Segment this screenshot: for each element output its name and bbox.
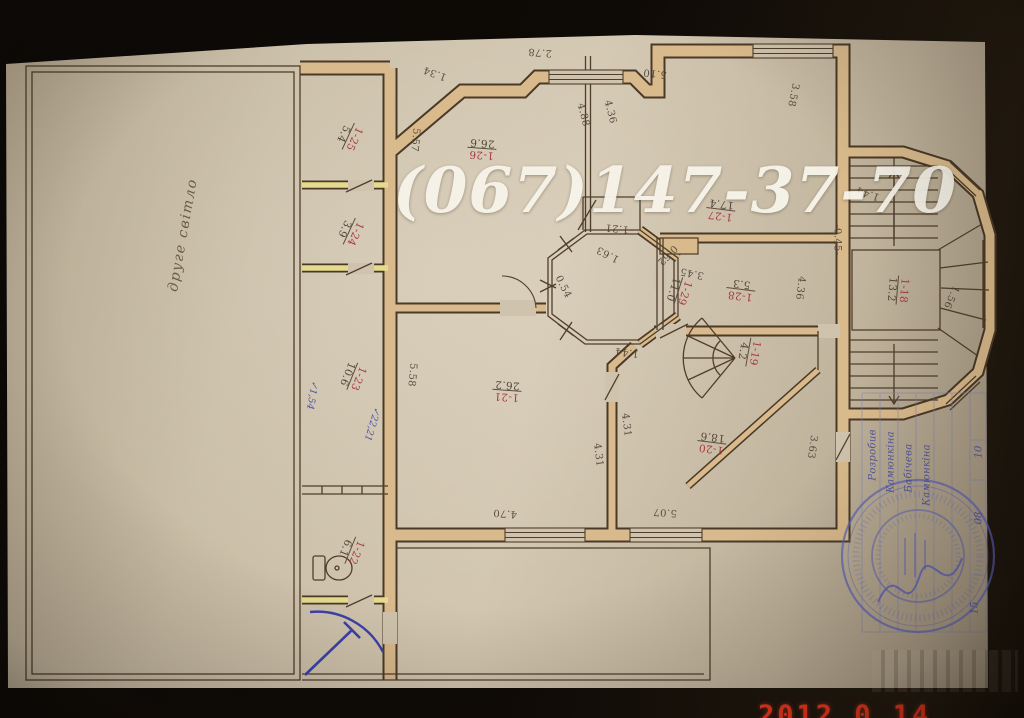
dim-label: 2.78 <box>528 46 553 59</box>
stamp-row-label: Бабічева <box>904 444 915 493</box>
entry-arrow <box>305 622 360 675</box>
stamp-row-label: Розробив <box>868 429 879 480</box>
room-label-1-18: 1-1813.2 <box>884 275 910 306</box>
room-area: 26.6 <box>470 135 495 148</box>
room-area: 4.2 <box>735 341 749 360</box>
stamp-cell: 08 <box>974 512 985 525</box>
stamp-row-label: Камюнкіна <box>922 444 933 506</box>
dim-label: 5.07 <box>653 506 678 519</box>
room-area: 18.6 <box>700 429 726 443</box>
entry-door-arc <box>310 612 383 652</box>
room-label-1-28: 1-285.3 <box>725 276 756 303</box>
underlying-photo-edge <box>872 650 1018 692</box>
room-area: 5.3 <box>732 276 751 289</box>
stamp-cell: 15 <box>970 602 981 615</box>
room-area: 13.2 <box>884 277 897 302</box>
dim-label: 5.57 <box>408 128 421 153</box>
dim-label: 5.58 <box>405 363 418 388</box>
dim-label: 4.70 <box>493 507 518 520</box>
camera-datestamp: 2012 0 14 <box>758 700 931 718</box>
room-label-1-21: 1-2126.2 <box>492 377 522 403</box>
dim-label: 5.10 <box>643 66 668 79</box>
room-label-1-19: 1-194.2 <box>734 336 762 368</box>
watermark-phone: (067)147-37-70 <box>393 153 957 227</box>
floor-plan-drawing <box>0 0 1024 718</box>
signature <box>878 558 962 602</box>
scanned-floor-plan-photo: 1-2626.6 1-2717.4 1-285.3 1-2911.0 1-212… <box>0 0 1024 718</box>
stamp-row-label: Камюнкіна <box>886 431 897 493</box>
room-label-1-20: 1-2018.6 <box>696 429 727 456</box>
stamp-cell: 10 <box>974 446 985 459</box>
room-area: 26.2 <box>495 377 520 390</box>
dim-label: -0.45- <box>832 224 843 255</box>
